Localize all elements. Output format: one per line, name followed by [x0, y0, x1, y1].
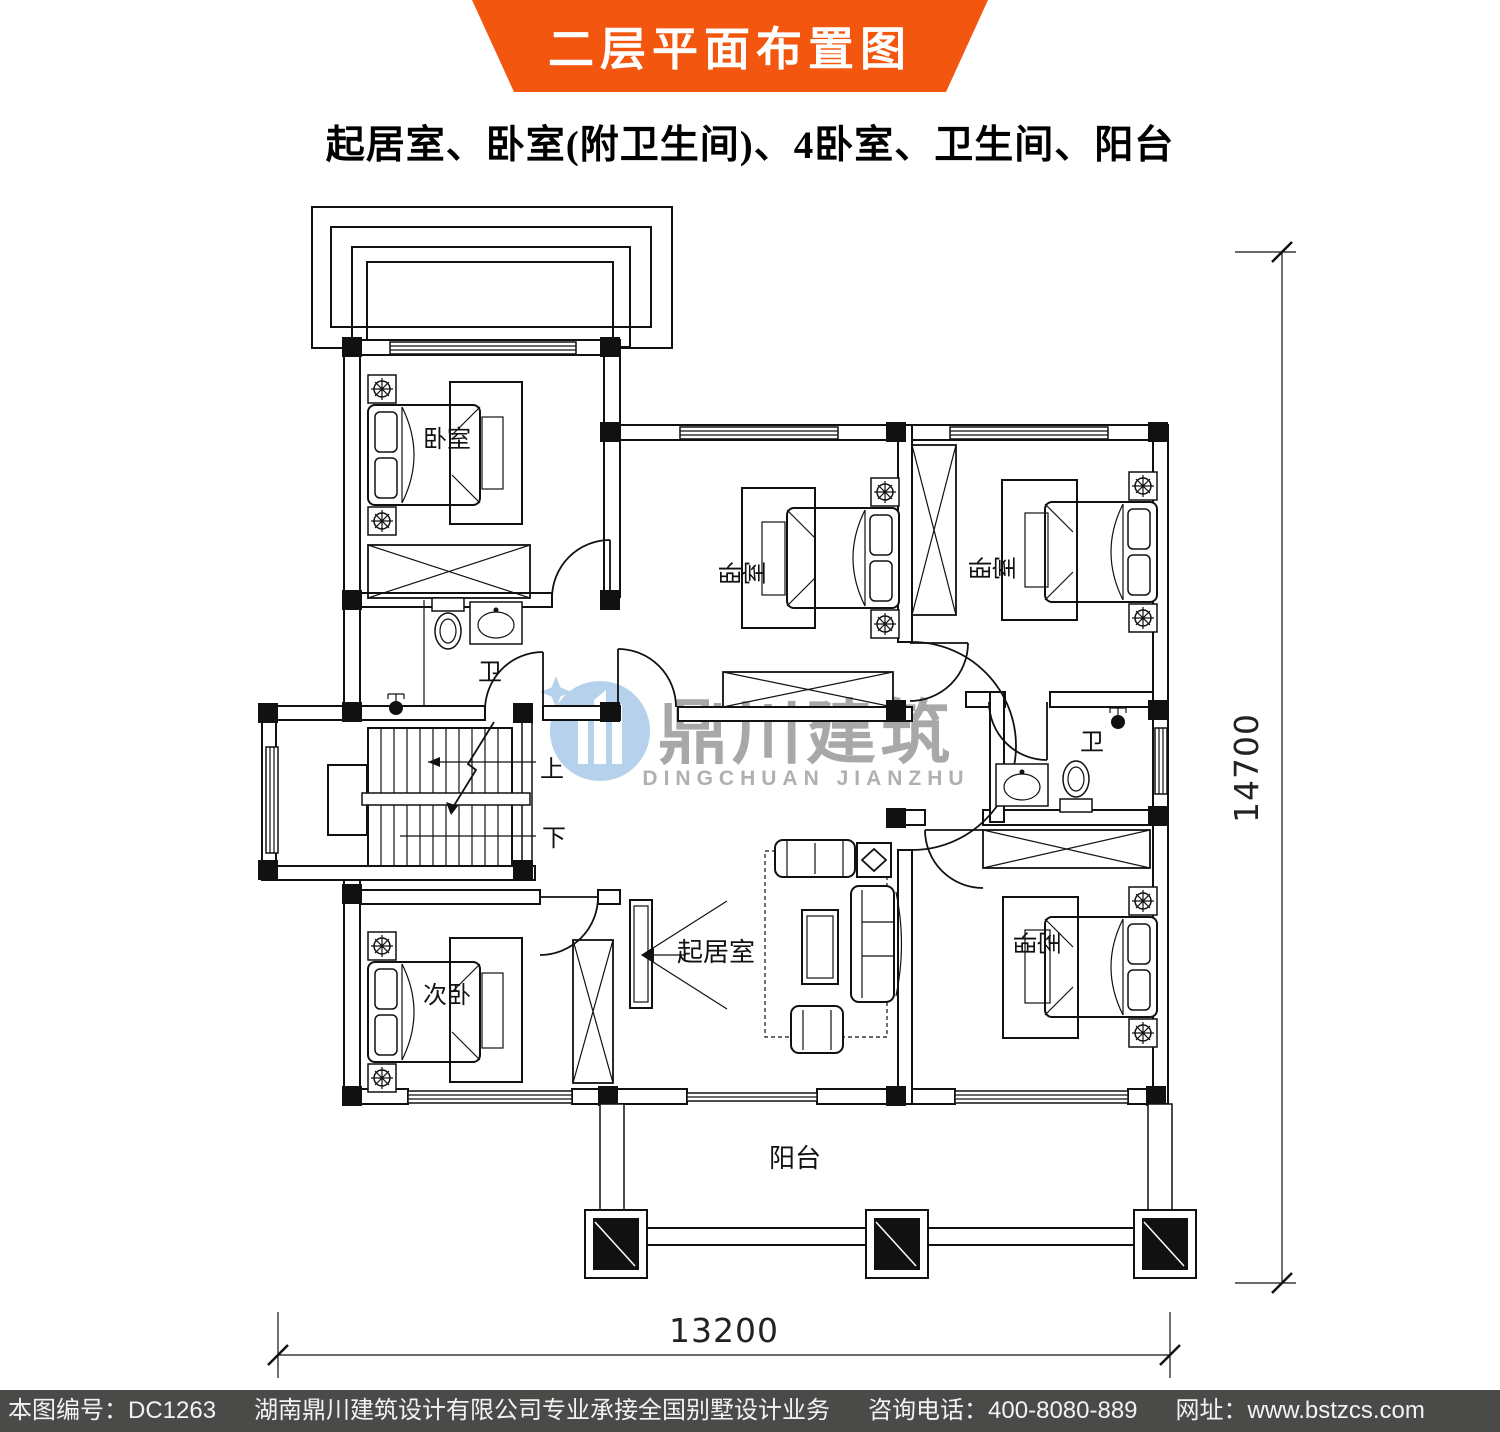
label-balcony: 阳台: [769, 1144, 821, 1173]
bed-icon: [368, 405, 480, 505]
label-second-bedroom: 次卧: [423, 982, 471, 1009]
sink-icon: [470, 602, 522, 644]
bed-icon: [368, 962, 480, 1062]
watermark-en: DINGCHUAN JIANZHU: [642, 767, 969, 790]
dimension-right: 14700: [1227, 242, 1296, 1293]
footer-website: 网址：www.bstzcs.com: [1176, 1390, 1425, 1432]
dim-height-value: 14700: [1227, 713, 1266, 823]
label-bedroom-top-left: 卧室: [423, 426, 471, 453]
dimension-bottom: 13200: [268, 1311, 1180, 1378]
footer-phone: 咨询电话：400-8080-889: [868, 1390, 1137, 1432]
bed-icon: [787, 508, 899, 608]
sink-icon: [996, 764, 1048, 806]
page: 鼎川建筑 DINGCHUAN JIANZHU: [0, 0, 1500, 1432]
dim-width-value: 13200: [669, 1311, 779, 1350]
subtitle: 起居室、卧室(附卫生间)、4卧室、卫生间、阳台: [0, 114, 1500, 170]
sofa-main: [851, 886, 894, 1002]
label-living-room: 起居室: [677, 938, 755, 967]
label-stairs-down: 下: [542, 826, 566, 852]
title-banner: 二层平面布置图: [472, 0, 988, 92]
label-bedroom-bottom-right: 卧室: [1013, 931, 1064, 955]
toilet-icon: [432, 598, 464, 649]
footer-bar: 本图编号：DC1263 湖南鼎川建筑设计有限公司专业承接全国别墅设计业务 咨询电…: [0, 1390, 1500, 1432]
label-bathroom-right: 卫: [1080, 730, 1104, 756]
bathroom-left-fixtures: [388, 598, 522, 715]
label-bedroom-top-right: 卧室: [968, 556, 1019, 580]
living-room-furniture: [630, 840, 902, 1053]
watermark-cn: 鼎川建筑: [658, 694, 954, 772]
footer-company: 湖南鼎川建筑设计有限公司专业承接全国别墅设计业务: [254, 1390, 830, 1432]
floor-plan: 鼎川建筑 DINGCHUAN JIANZHU: [0, 0, 1500, 1432]
label-bathroom-left: 卫: [478, 660, 502, 686]
bed-icon: [1045, 502, 1157, 602]
toilet-icon: [1060, 761, 1092, 812]
balcony: [585, 1104, 1196, 1278]
shower-icon: [388, 694, 404, 715]
armchair: [791, 1006, 843, 1053]
label-stairs-up: 上: [540, 756, 564, 783]
shower-icon: [1110, 708, 1126, 729]
page-title: 二层平面布置图: [548, 13, 912, 79]
porch-outline: [312, 207, 672, 348]
label-bedroom-middle: 卧室: [718, 561, 769, 585]
watermark: 鼎川建筑 DINGCHUAN JIANZHU: [540, 676, 970, 790]
footer-drawing-no: 本图编号：DC1263: [8, 1390, 216, 1432]
